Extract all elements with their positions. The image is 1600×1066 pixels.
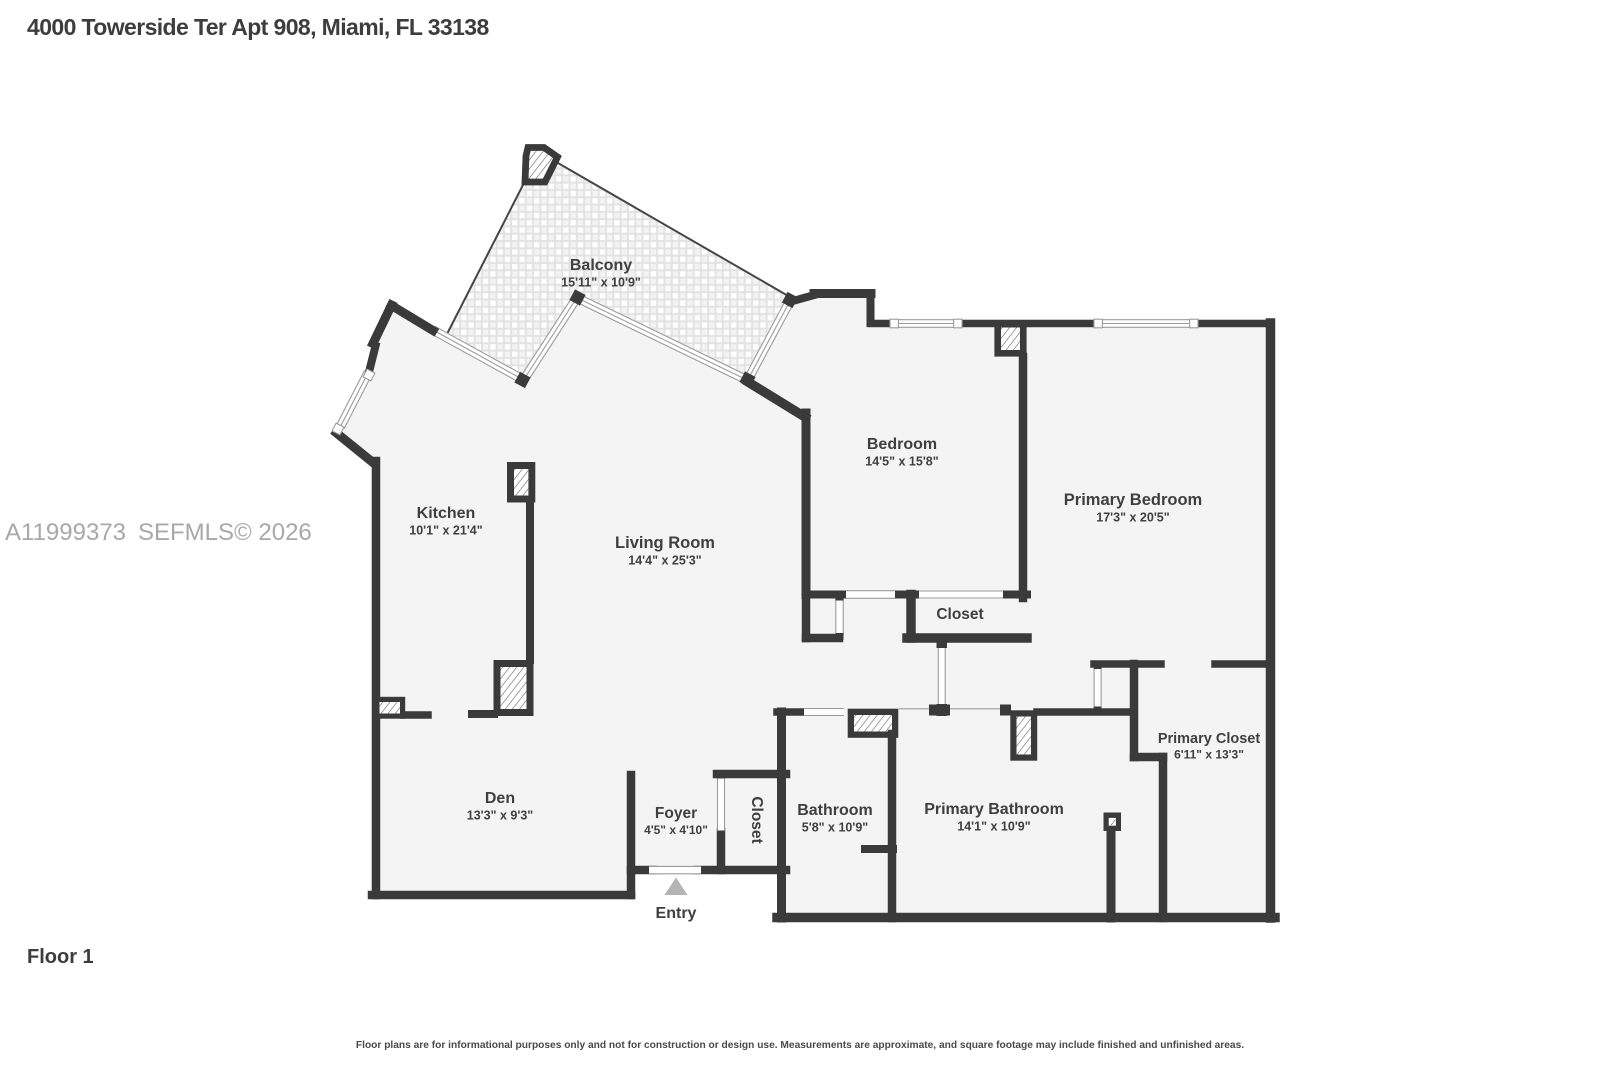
svg-text:10'1" x 21'4": 10'1" x 21'4" <box>409 524 482 538</box>
svg-text:Living Room: Living Room <box>615 534 715 552</box>
svg-text:Primary Bathroom: Primary Bathroom <box>924 801 1064 818</box>
svg-text:Foyer: Foyer <box>655 805 697 822</box>
svg-text:Den: Den <box>485 790 515 807</box>
svg-text:Closet: Closet <box>936 606 983 623</box>
svg-text:Balcony: Balcony <box>570 257 632 274</box>
svg-text:Kitchen: Kitchen <box>417 505 476 522</box>
svg-text:14'4" x 25'3": 14'4" x 25'3" <box>628 554 701 568</box>
svg-text:Bathroom: Bathroom <box>797 802 873 819</box>
svg-text:Primary Bedroom: Primary Bedroom <box>1064 491 1202 509</box>
svg-text:Bedroom: Bedroom <box>867 436 937 453</box>
svg-text:6'11" x 13'3": 6'11" x 13'3" <box>1174 748 1244 762</box>
svg-text:14'1" x 10'9": 14'1" x 10'9" <box>957 820 1030 834</box>
svg-text:15'11" x 10'9": 15'11" x 10'9" <box>561 276 641 290</box>
svg-text:Primary Closet: Primary Closet <box>1158 731 1261 747</box>
svg-text:14'5" x 15'8": 14'5" x 15'8" <box>865 455 938 469</box>
svg-text:Entry: Entry <box>656 905 697 922</box>
svg-text:4'5" x 4'10": 4'5" x 4'10" <box>644 823 708 837</box>
svg-text:5'8" x 10'9": 5'8" x 10'9" <box>802 821 869 835</box>
svg-text:17'3" x 20'5": 17'3" x 20'5" <box>1096 511 1169 525</box>
svg-text:13'3" x 9'3": 13'3" x 9'3" <box>467 809 534 823</box>
svg-text:Closet: Closet <box>748 796 765 843</box>
